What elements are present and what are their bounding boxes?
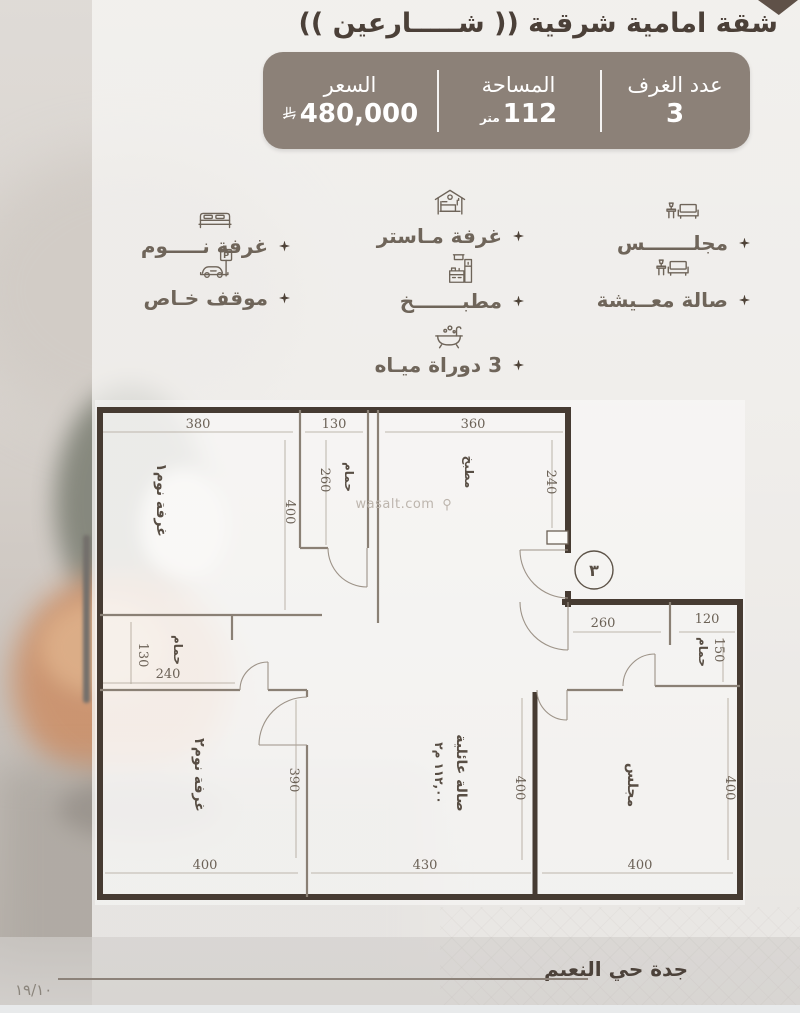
area-number: 112 [503,99,557,129]
price-value: 480,000 [282,99,418,129]
summary-panel: عدد الغرف 3 المساحة 112 متر السعر 480,00… [263,52,750,149]
area-value: 112 متر [480,99,557,129]
dim-bath-right-width: 120 [695,612,720,627]
feature-label: موقف خـاص [144,286,268,310]
room-label-bedroom1: غرفة نوم١ [153,463,169,537]
room-label-majlis: مجلس [624,763,640,807]
dim-bedroom1-width: 380 [186,417,211,432]
dim-bath-top-height: 260 [317,468,332,493]
feature-living-room: صالة معــيشة [597,250,750,312]
room-label-kitchen: مطبخ [462,456,476,489]
footer-date: ١٩/١٠ [15,981,52,999]
area-unit: متر [480,111,500,125]
parking-sign-letter: P [223,250,229,260]
feature-label: غرفة مـاستر [377,224,502,248]
rooms-cell: عدد الغرف 3 [600,52,750,149]
dim-majlis-height: 400 [722,776,737,801]
parking-icon: P [197,248,237,284]
feature-master-room: غرفة مـاستر [377,186,524,248]
diamond-bullet-icon [513,296,524,307]
dim-bath-top-width: 130 [322,417,347,432]
floorplan-background [95,400,745,905]
flyer-page: شقة امامية شرقية (( شـــــارعين )) عدد ا… [0,0,800,1013]
bottom-edge [0,1005,800,1013]
watermark-text: wasalt.com [356,497,435,512]
feature-parking: P موقف خـاص [144,248,290,310]
saudi-riyal-icon [282,106,297,121]
diamond-bullet-icon [739,295,750,306]
master-bedroom-icon [430,186,470,222]
area-label: المساحة [482,73,556,97]
price-cell: السعر 480,000 [263,52,437,149]
dim-majlis-width: 400 [628,858,653,873]
floorplan: ٣ 380 130 360 260 120 240 400 430 400 40… [95,400,745,905]
feature-kitchen: مطبـــــــخ [400,251,524,313]
panel-divider [600,70,602,132]
room-label-bath-top: حمام [341,462,356,492]
feature-label: مطبـــــــخ [400,289,502,313]
panel-divider [437,70,439,132]
living-room-sofa-icon [652,250,694,286]
dim-bedroom2-height: 390 [286,768,301,793]
diamond-bullet-icon [513,231,524,242]
feature-label: 3 دوراة ميـاه [375,353,502,377]
rooms-label: عدد الغرف [627,73,722,97]
room-label-family-hall: صالة عائلية [453,734,469,811]
entrance-number: ٣ [589,561,599,580]
wall-niche [547,531,568,544]
feature-label: صالة معــيشة [597,288,728,312]
area-cell: المساحة 112 متر [437,52,600,149]
room-label-bath-left: حمام [170,635,185,665]
dim-bedroom1-height: 400 [282,500,297,525]
dim-bedroom2-width: 400 [193,858,218,873]
dim-kitchen-height: 240 [543,470,558,495]
feature-majlis: مجلـــــــس [617,193,750,255]
dim-family-width: 430 [413,858,438,873]
room-label-bedroom2: غرفة نوم٢ [191,738,207,812]
majlis-sofa-icon [662,193,704,229]
diamond-bullet-icon [513,360,524,371]
price-number: 480,000 [300,99,418,129]
bed-icon [195,196,235,232]
dim-bath-left-width: 240 [156,667,181,682]
page-title: شقة امامية شرقية (( شـــــارعين )) [298,8,778,39]
room-label-bath-right: حمام [695,637,710,667]
price-label: السعر [324,73,377,97]
dim-hall-width: 260 [591,616,616,631]
dim-bath-left-height: 130 [135,643,150,668]
dim-bath-right-height: 150 [711,638,726,663]
diamond-bullet-icon [739,238,750,249]
dim-family-height: 400 [512,776,527,801]
kitchen-icon [443,251,481,287]
footer-band: جدة حي النعيم ١٩/١٠ [0,937,800,1013]
footer-underline [58,978,588,980]
room-label-family-area: ١١٢,٠٠ م٢ [431,742,446,804]
dim-kitchen-width: 360 [461,417,486,432]
diamond-bullet-icon [279,293,290,304]
feature-bathrooms: 3 دوراة ميـاه [375,315,524,377]
bathtub-icon [430,315,468,351]
rooms-value: 3 [666,99,684,129]
